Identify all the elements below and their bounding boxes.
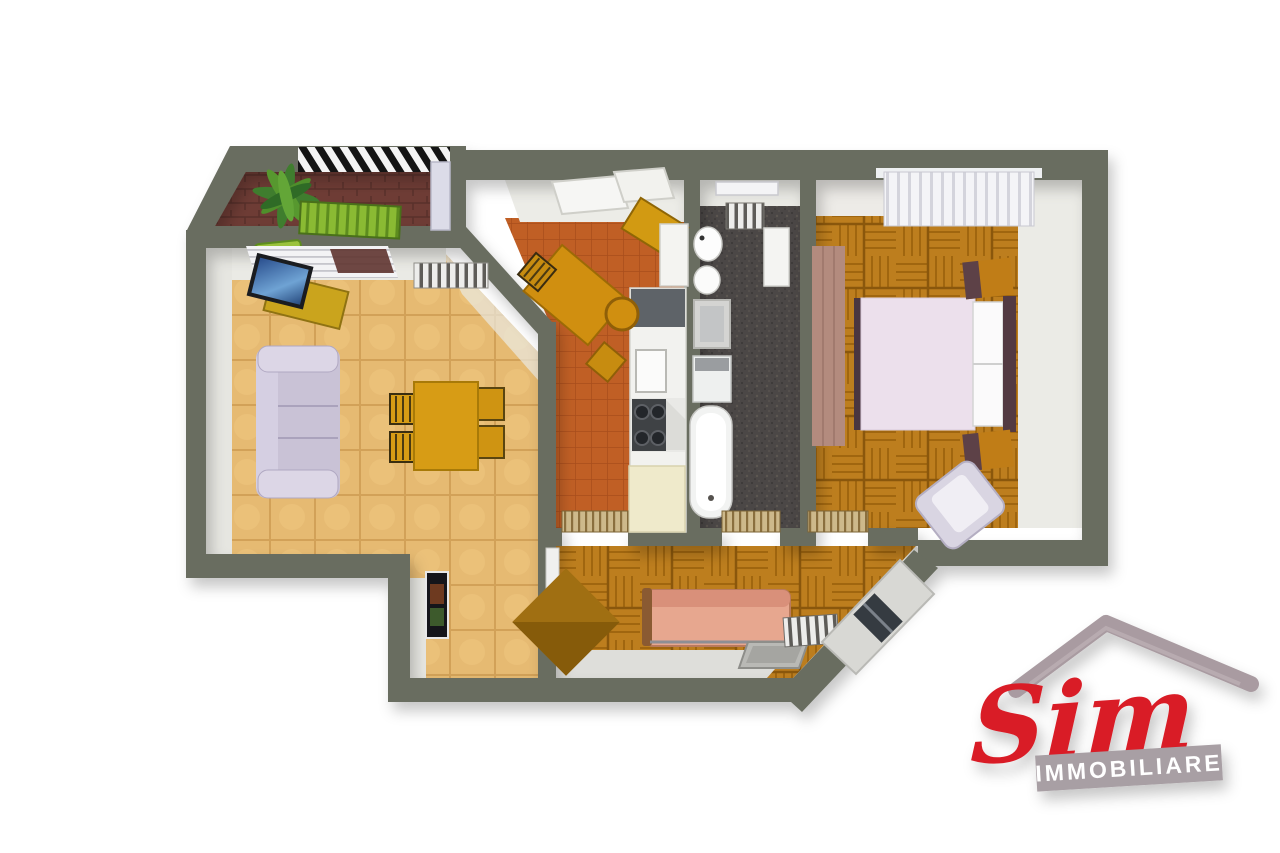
bed-duvet (861, 298, 975, 430)
living-window-view (330, 249, 394, 273)
counter-dark-section (631, 289, 685, 327)
bidet (694, 266, 720, 294)
cream-cabinet (629, 466, 685, 532)
floor-plan-svg: Sim IMMOBILIARE (0, 0, 1280, 853)
kitchen-counter (629, 288, 686, 532)
washing-machine (693, 356, 731, 402)
balcony-railing (298, 147, 450, 172)
hall-picture-art (430, 584, 444, 604)
dining-chair (478, 388, 504, 420)
bathroom-window (716, 182, 778, 195)
dining-chair (478, 426, 504, 458)
bathroom-radiator (726, 203, 764, 229)
bedroom-curtain (884, 172, 1034, 226)
agency-logo: Sim IMMOBILIARE (960, 623, 1251, 792)
living-radiator (414, 263, 488, 288)
balcony-lounger (299, 201, 401, 238)
sofa (256, 346, 340, 498)
wardrobe (812, 246, 845, 446)
bed (854, 296, 1016, 432)
stove (631, 398, 686, 452)
toilet (694, 227, 722, 261)
nightstand (962, 258, 1014, 300)
bathroom-shelf (764, 228, 789, 286)
shower-tray (694, 300, 730, 348)
bathroom-door-mat (722, 511, 780, 532)
dining-table (414, 382, 478, 470)
kitchen-stool (606, 298, 638, 330)
bathtub (690, 406, 732, 518)
fridge (660, 224, 688, 286)
kitchen-sink (636, 350, 666, 392)
hall-picture-art (430, 608, 444, 626)
balcony-door (431, 162, 450, 230)
floor-plan-image: Sim IMMOBILIARE (0, 0, 1280, 853)
bed-headboard (1003, 296, 1016, 432)
hall-picture (426, 572, 448, 638)
kitchen-door-mat (562, 511, 628, 532)
bedroom-door-mat (808, 511, 868, 532)
pink-sofa (642, 588, 790, 646)
